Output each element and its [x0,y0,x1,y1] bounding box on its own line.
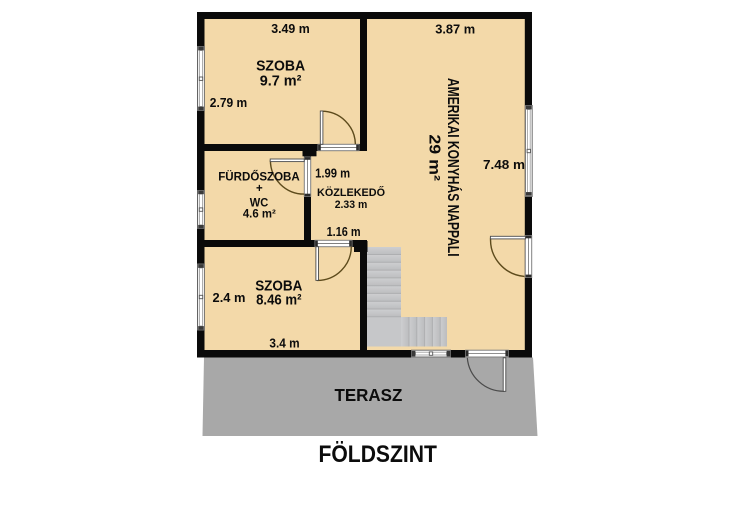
svg-text:8.46 m²: 8.46 m² [256,292,301,309]
svg-text:2.79 m: 2.79 m [210,95,247,110]
svg-text:9.7 m²: 9.7 m² [260,73,302,90]
svg-text:KÖZLEKEDŐ: KÖZLEKEDŐ [317,186,385,199]
svg-text:1.99 m: 1.99 m [315,166,350,181]
svg-text:4.6 m²: 4.6 m² [243,209,276,221]
svg-text:FÖLDSZINT: FÖLDSZINT [319,441,438,468]
svg-text:7.48 m: 7.48 m [483,157,525,172]
svg-text:TERASZ: TERASZ [335,385,403,405]
svg-text:AMERIKAI KONYHÁS NAPPALI: AMERIKAI KONYHÁS NAPPALI [444,78,461,257]
svg-text:FÜRDŐSZOBA: FÜRDŐSZOBA [218,170,300,183]
svg-text:3.49 m: 3.49 m [271,21,310,36]
svg-text:2.33 m: 2.33 m [335,199,368,211]
svg-text:29 m²: 29 m² [426,134,443,181]
svg-text:3.87 m: 3.87 m [435,22,475,37]
svg-text:2.4 m: 2.4 m [213,290,246,305]
svg-text:+: + [256,183,263,195]
svg-text:1.16 m: 1.16 m [327,225,361,239]
svg-text:3.4 m: 3.4 m [269,336,299,351]
